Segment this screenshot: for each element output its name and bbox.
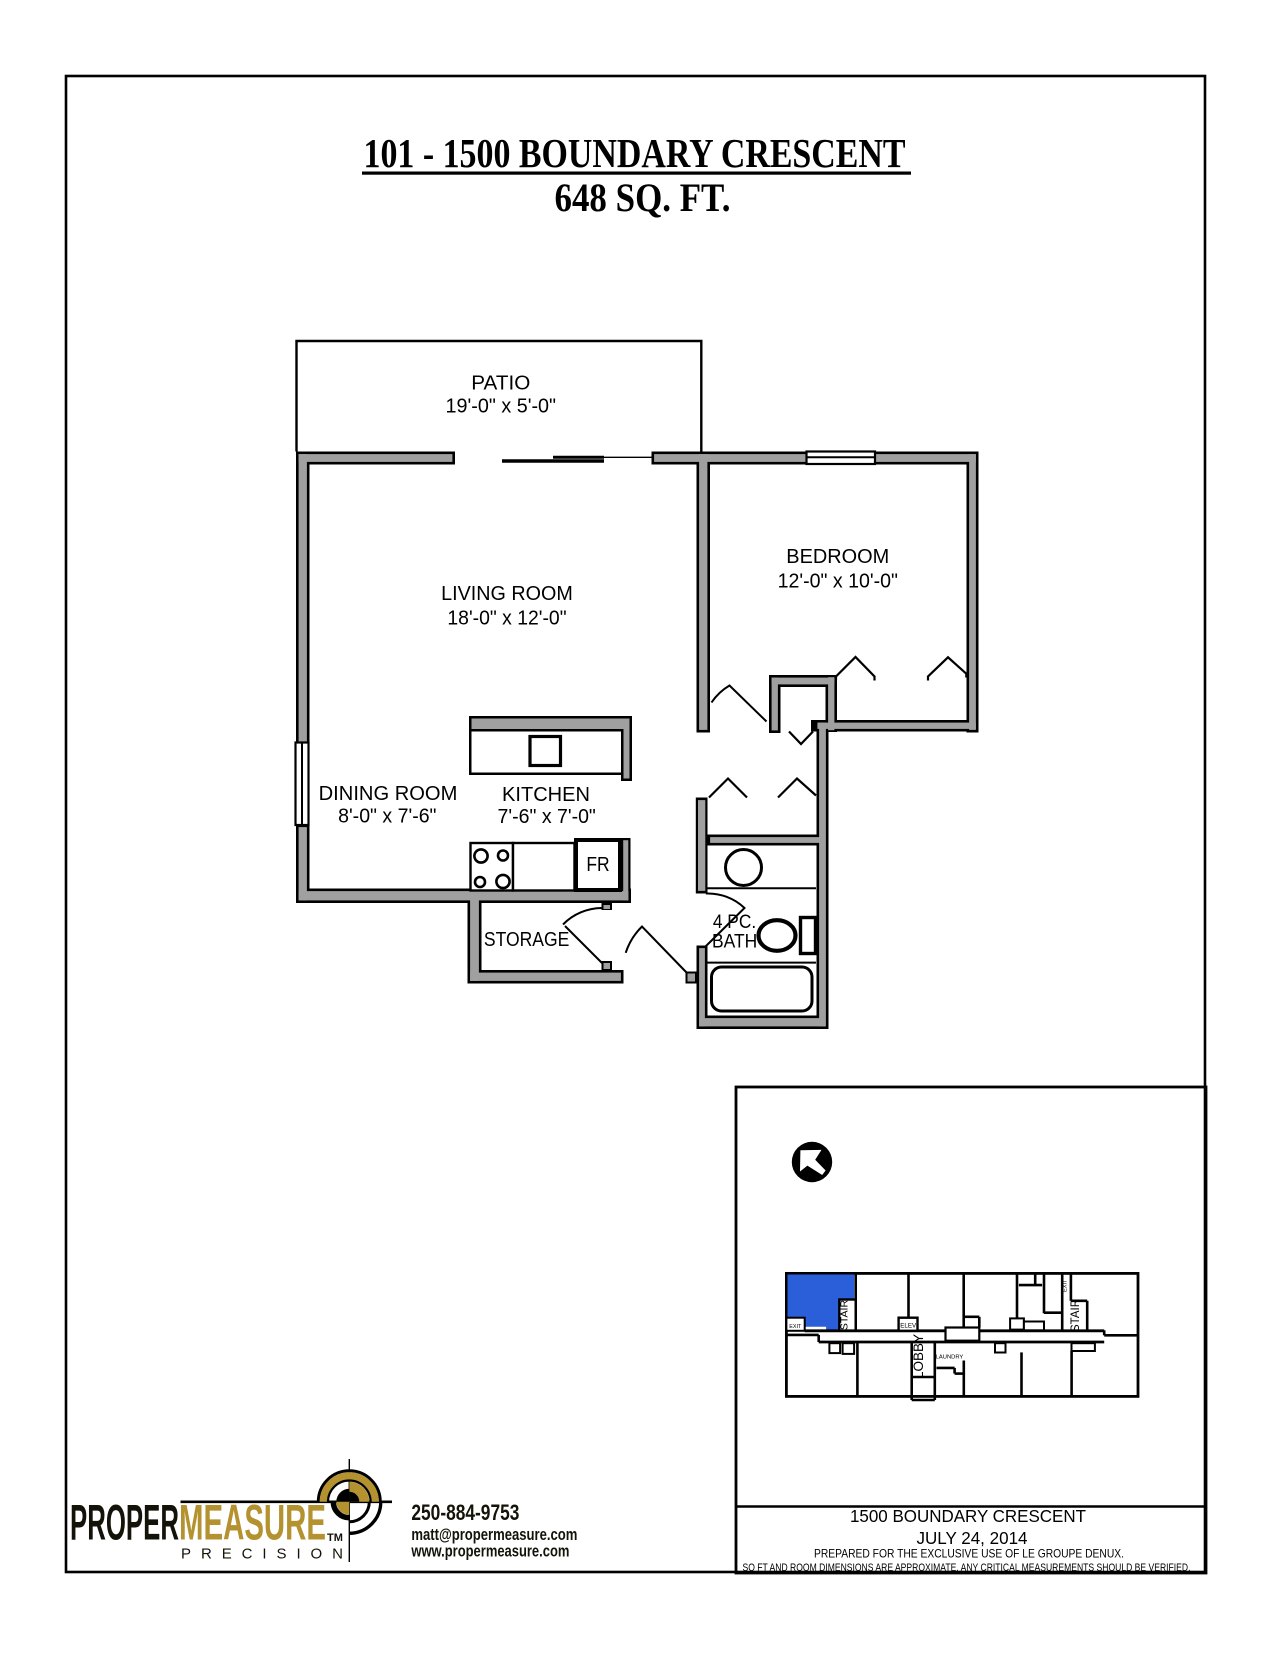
svg-text:JULY 24, 2014: JULY 24, 2014 <box>917 1528 1028 1548</box>
svg-text:ELEV: ELEV <box>900 1322 917 1329</box>
svg-text:SQ FT AND ROOM DIMENSIONS ARE: SQ FT AND ROOM DIMENSIONS ARE APPROXIMAT… <box>743 1562 1191 1574</box>
svg-text:EXIT: EXIT <box>1062 1279 1068 1292</box>
svg-text:STAIR: STAIR <box>838 1300 850 1331</box>
svg-text:1500 BOUNDARY CRESCENT: 1500 BOUNDARY CRESCENT <box>850 1506 1086 1526</box>
svg-text:250-884-9753: 250-884-9753 <box>411 1500 519 1525</box>
svg-text:LIVING ROOM: LIVING ROOM <box>441 582 573 605</box>
svg-text:DINING ROOM: DINING ROOM <box>319 782 458 805</box>
svg-text:PATIO: PATIO <box>471 372 530 395</box>
svg-text:STORAGE: STORAGE <box>484 928 569 951</box>
svg-text:KITCHEN: KITCHEN <box>502 783 590 806</box>
svg-text:101 - 1500 BOUNDARY CRESCENT: 101 - 1500 BOUNDARY CRESCENT <box>364 130 906 176</box>
svg-text:TM: TM <box>327 1532 343 1544</box>
svg-text:LAUNDRY: LAUNDRY <box>936 1354 964 1360</box>
svg-text:PREPARED FOR THE EXCLUSIVE USE: PREPARED FOR THE EXCLUSIVE USE OF LE GRO… <box>814 1547 1124 1561</box>
svg-text:7'-6" x 7'-0": 7'-6" x 7'-0" <box>498 805 596 828</box>
svg-text:PROPER: PROPER <box>70 1495 179 1551</box>
svg-text:BEDROOM: BEDROOM <box>786 545 889 568</box>
svg-text:18'-0" x 12'-0": 18'-0" x 12'-0" <box>447 607 566 630</box>
svg-text:648 SQ. FT.: 648 SQ. FT. <box>555 175 731 220</box>
svg-text:STAIR: STAIR <box>1070 1299 1082 1332</box>
svg-text:19'-0" x 5'-0": 19'-0" x 5'-0" <box>446 395 557 418</box>
svg-text:PRECISION: PRECISION <box>181 1546 343 1563</box>
svg-text:FR: FR <box>586 853 609 876</box>
svg-text:8'-0" x 7'-6": 8'-0" x 7'-6" <box>338 805 436 828</box>
svg-text:12'-0" x 10'-0": 12'-0" x 10'-0" <box>778 570 898 593</box>
svg-text:EXIT: EXIT <box>789 1324 802 1330</box>
svg-text:LOBBY: LOBBY <box>911 1334 926 1379</box>
svg-text:www.propermeasure.com: www.propermeasure.com <box>411 1542 570 1561</box>
